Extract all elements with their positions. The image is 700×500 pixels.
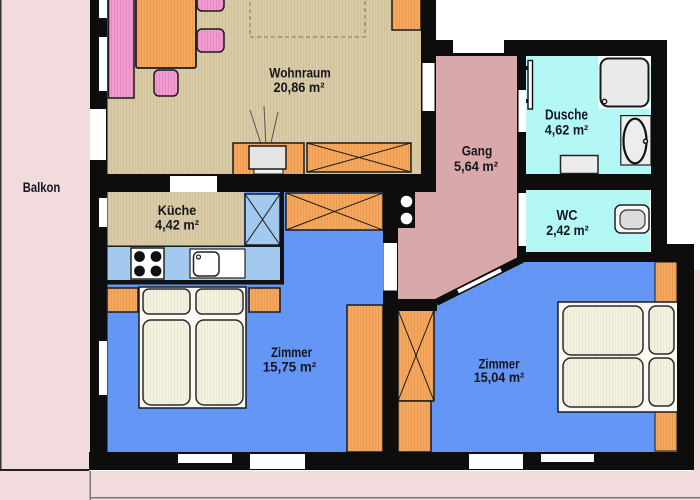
svg-text:Gang: Gang	[462, 143, 493, 159]
svg-text:Balkon: Balkon	[23, 180, 61, 195]
svg-text:20,86 m²: 20,86 m²	[274, 80, 325, 95]
svg-text:15,75 m²: 15,75 m²	[263, 359, 317, 375]
svg-text:5,64 m²: 5,64 m²	[454, 158, 498, 174]
svg-text:Wohnraum: Wohnraum	[269, 65, 331, 80]
svg-text:4,62 m²: 4,62 m²	[545, 122, 589, 138]
svg-text:15,04 m²: 15,04 m²	[474, 369, 525, 385]
svg-text:4,42 m²: 4,42 m²	[155, 217, 199, 233]
svg-text:2,42 m²: 2,42 m²	[546, 222, 589, 238]
